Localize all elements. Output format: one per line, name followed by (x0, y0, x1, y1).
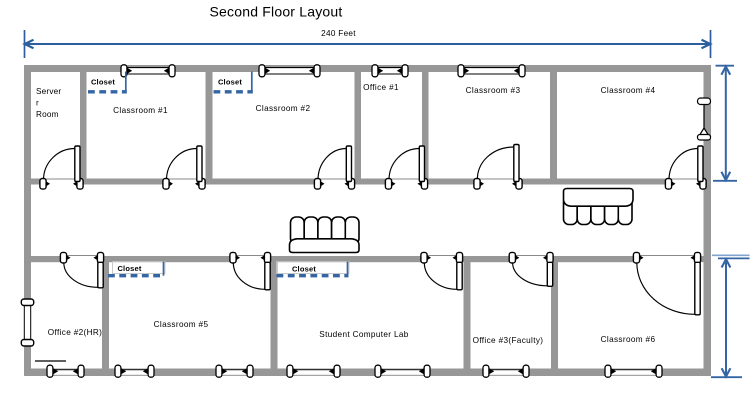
svg-text:Office #1: Office #1 (363, 83, 399, 92)
svg-text:Classroom #3: Classroom #3 (466, 86, 521, 95)
svg-text:Classroom #4: Classroom #4 (601, 86, 656, 95)
svg-text:Second Floor Layout: Second Floor Layout (210, 4, 343, 20)
svg-text:Classroom #5: Classroom #5 (154, 320, 209, 329)
svg-text:Classroom #2: Classroom #2 (256, 104, 311, 113)
svg-text:Classroom #6: Classroom #6 (601, 335, 656, 344)
svg-text:Closet: Closet (117, 264, 141, 273)
svg-text:Room: Room (36, 110, 59, 119)
svg-text:Student Computer Lab: Student Computer Lab (319, 330, 408, 339)
svg-text:Closet: Closet (91, 78, 115, 87)
svg-text:Server: Server (36, 87, 61, 96)
svg-text:Closet: Closet (292, 265, 316, 274)
svg-text:Classroom #1: Classroom #1 (113, 106, 168, 115)
svg-text:Office #2(HR): Office #2(HR) (48, 328, 102, 337)
svg-text:Office #3(Faculty): Office #3(Faculty) (473, 336, 544, 345)
svg-text:240 Feet: 240 Feet (321, 29, 356, 38)
svg-text:r: r (36, 99, 39, 108)
svg-text:Closet: Closet (218, 78, 242, 87)
